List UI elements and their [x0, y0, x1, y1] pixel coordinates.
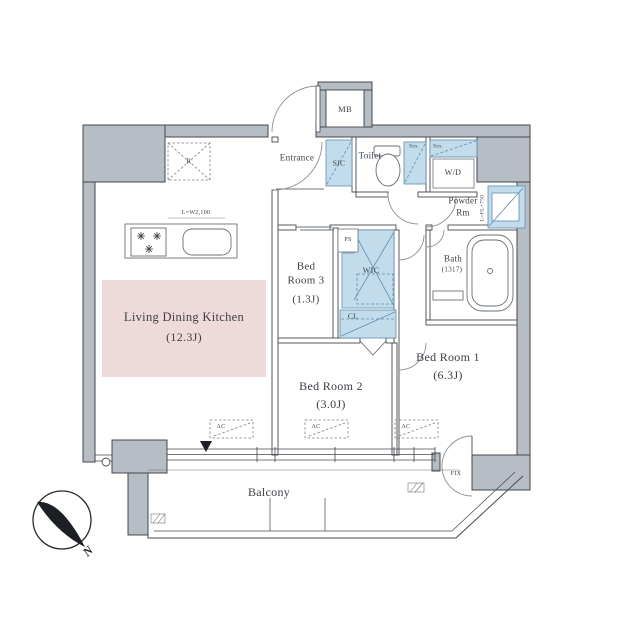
- floor-plan-page: MB Entrance SIC Toilet Stn. Stn. W/D Pow…: [0, 0, 640, 640]
- bedroom1-size-label: (6.3J): [433, 369, 462, 381]
- bath-size-label: (1317): [442, 267, 462, 274]
- ac-label-ldk: AC: [217, 424, 226, 430]
- shelf-label-wd: Stn.: [433, 144, 443, 150]
- balcony-structure: [148, 472, 523, 538]
- toilet-label: Toilet: [359, 152, 382, 161]
- bedroom2-size-label: (3.0J): [316, 398, 345, 410]
- misc-symbols: [102, 458, 110, 466]
- ac-label-bedroom1: AC: [402, 424, 411, 430]
- entrance-label: Entrance: [280, 154, 314, 163]
- kitchen-counter-annotation: L=W2,100: [182, 210, 211, 216]
- compass-icon: [33, 491, 91, 549]
- wic-label: WIC: [363, 267, 379, 275]
- powder-room-label-line1: Powder: [448, 197, 477, 206]
- mb-label: MB: [338, 105, 352, 114]
- kitchen-fixtures: [125, 218, 237, 258]
- entry-marker: [200, 441, 212, 452]
- bedroom2-label: Bed Room 2: [299, 380, 363, 392]
- shelf-label-toilet: Stn.: [409, 144, 419, 150]
- ps-label: PS: [344, 237, 351, 243]
- ldk-floor-highlight: [102, 280, 266, 377]
- floorplan-svg: [0, 0, 640, 640]
- powder-room-label-line2: Rm: [456, 209, 470, 218]
- balcony-label: Balcony: [248, 486, 290, 498]
- fix-window-label: FIX: [451, 471, 462, 477]
- ac-label-bedroom2: AC: [312, 424, 321, 430]
- bath-label: Bath: [444, 255, 462, 264]
- bedroom3-label-line1: Bed: [297, 262, 316, 273]
- ldk-label: Living Dining Kitchen: [124, 311, 244, 324]
- washstand-annotation: L=FL+750: [480, 195, 486, 222]
- cl-label: CL: [348, 312, 358, 320]
- windows: [148, 447, 460, 470]
- ldk-size-label: (12.3J): [166, 331, 202, 343]
- bedroom3-label-line2: Room 3: [288, 276, 325, 287]
- sic-label: SIC: [333, 159, 346, 167]
- bedroom1-label: Bed Room 1: [416, 351, 480, 363]
- bedroom3-size-label: (1.3J): [292, 295, 319, 306]
- refrigerator-label: R: [187, 159, 192, 166]
- washer-dryer-label: W/D: [445, 169, 461, 177]
